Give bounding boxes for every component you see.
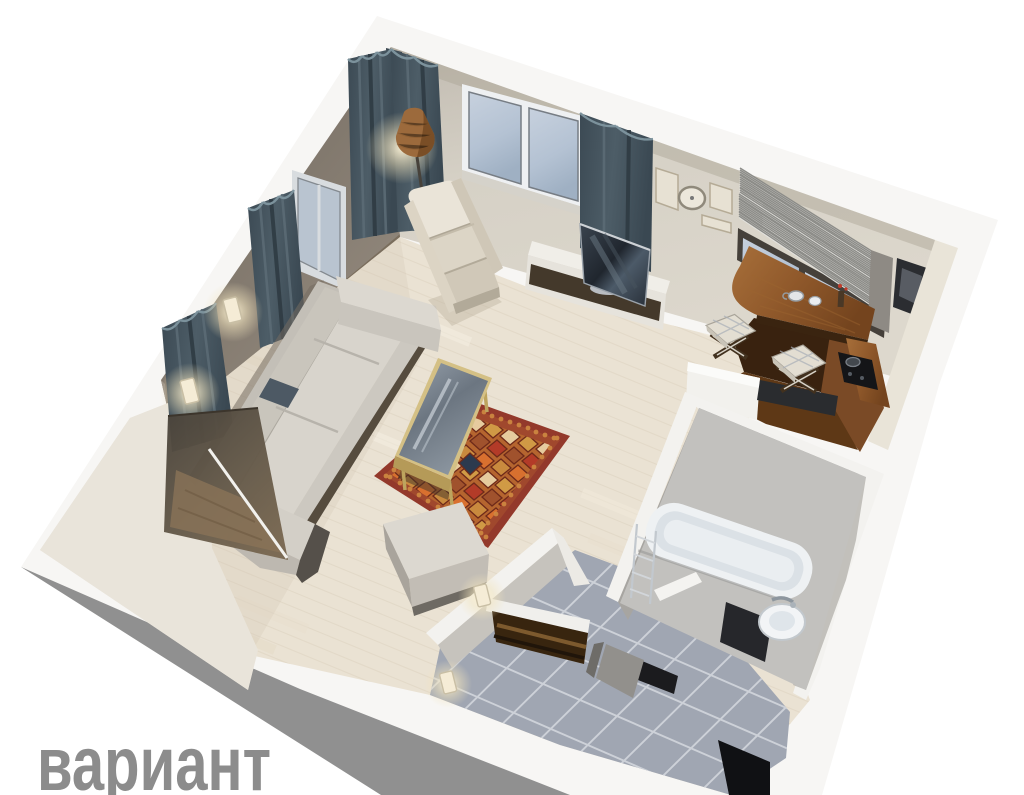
svg-text:вариант: вариант: [37, 722, 271, 795]
